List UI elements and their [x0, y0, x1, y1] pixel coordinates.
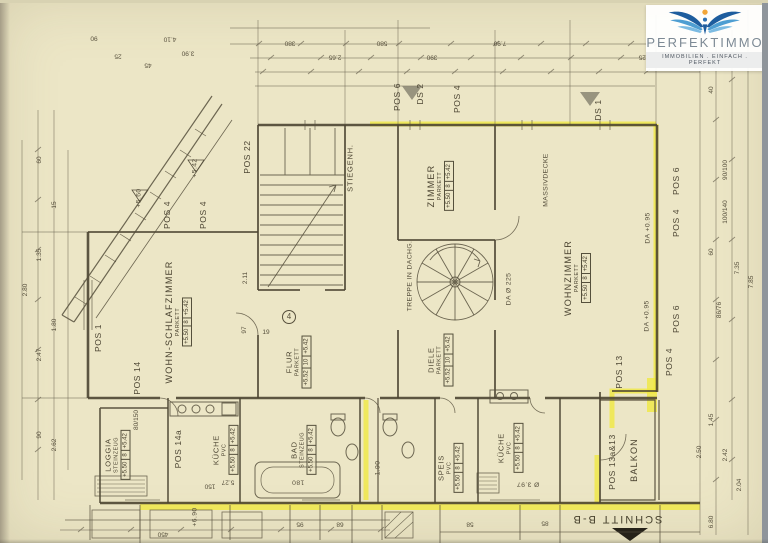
dim-label: 7.85 — [749, 276, 756, 289]
dim-label: 25 — [114, 52, 121, 59]
level-box: +5.5210+5.42 — [444, 333, 454, 386]
room-label-kueche-2: KÜCHE PVC +5.508+5.42 — [497, 423, 524, 473]
dim-label: 68 — [336, 520, 343, 527]
circled-number: 4 — [282, 310, 296, 324]
level-box: +5.508+5.42 — [454, 443, 464, 493]
dim-label: 2.65 — [329, 53, 342, 60]
room-label-wohnzimmer: WOHNZIMMER PARKETT +5.508+5.42 — [563, 240, 591, 316]
dim-label: 2.42 — [723, 449, 730, 462]
dim-label: 40 — [709, 86, 716, 93]
room-label-bad: BAD STEINZEUG +5.508+5.42 — [290, 425, 317, 475]
dim-label: 4.10 — [164, 35, 177, 42]
pos-label: DS 2 — [416, 83, 425, 104]
level-box: +5.5210+5.42 — [302, 335, 312, 388]
logo: PERFEKTIMMO IMMOBILIEN . EINFACH . PERFE… — [646, 5, 764, 71]
dim-label: 390 — [427, 53, 438, 60]
note-label: 180 — [292, 478, 305, 485]
note-label: +5.60 — [137, 188, 144, 207]
dim-label: 450 — [158, 530, 169, 537]
level-box: +5.508+5.42 — [229, 425, 239, 475]
dim-label: 58 — [466, 520, 473, 527]
level-box: +5.508+5.42 — [307, 425, 317, 475]
note-label: 1.90 — [376, 461, 383, 476]
dim-label: 2.62 — [52, 439, 59, 452]
dim-label: 80/150 — [134, 410, 141, 430]
kitchen-counter — [170, 402, 238, 416]
pos-label: POS 6 — [672, 167, 681, 195]
pos-label: POS 13a&13 — [608, 434, 617, 490]
dim-label: 6.80 — [709, 516, 716, 529]
note-label: DA +0.95 — [645, 300, 652, 331]
note-label: +5.42 — [193, 158, 200, 177]
level-box: +5.508+5.42 — [121, 430, 131, 480]
dim-label: 2.47 — [37, 349, 44, 362]
room-label-diele: DIELE PARKETT +5.5210+5.42 — [427, 333, 454, 386]
brand-wordmark: PERFEKTIMMO — [646, 35, 763, 50]
dim-label: 19 — [262, 330, 269, 337]
toilet — [331, 418, 345, 436]
room-label-kueche-1: KÜCHE PVC +5.508+5.42 — [212, 425, 239, 475]
note-label: MASSIVDECKE — [544, 153, 551, 207]
room-label-zimmer: ZIMMER PARKETT +5.508+5.42 — [426, 161, 454, 211]
scan-edge-bottom — [0, 539, 768, 543]
dim-label: 90 — [90, 34, 97, 41]
floorplan-sheet: WOHN-SCHLAFZIMMER PARKETT +5.508+5.42 ZI… — [0, 0, 768, 543]
dim-label: 1.35 — [37, 249, 44, 262]
dim-label: 45 — [144, 61, 151, 68]
spiral-stair — [417, 244, 493, 320]
dim-label: 1.80 — [52, 319, 59, 332]
dim-label: 90/100 — [723, 160, 730, 180]
pos-label: POS 4 — [665, 348, 674, 376]
dim-label: 2.50 — [697, 446, 704, 459]
dimension-chains — [22, 10, 748, 535]
dim-label: 60 — [709, 248, 716, 255]
pos-label: POS 6 — [672, 305, 681, 333]
pos-label: POS 14a — [174, 430, 183, 469]
note-label: TREPPE IN DACHG. — [408, 241, 415, 312]
pos-label: POS 4 — [163, 201, 172, 229]
level-box: +5.508+5.42 — [581, 253, 591, 303]
level-box: +5.508+5.42 — [182, 297, 192, 347]
staircase — [260, 128, 345, 287]
toilet — [383, 418, 397, 436]
dim-label: 60 — [37, 156, 44, 163]
door-arcs — [160, 216, 626, 460]
pos-label: POS 4 — [453, 85, 462, 113]
note-label: +6.90 — [193, 507, 200, 526]
scan-edge-right — [762, 0, 768, 543]
dim-label: 97 — [242, 326, 249, 333]
level-box: +5.508+5.42 — [514, 423, 524, 473]
eagle-sun-icon — [657, 7, 753, 37]
dim-label: 90 — [37, 431, 44, 438]
room-label-flur: FLUR PARKETT +5.5210+5.42 — [285, 335, 312, 388]
pos-label: POS 4 — [672, 209, 681, 237]
washbasin — [346, 444, 358, 460]
dim-label: 2.04 — [737, 479, 744, 492]
dim-label: 1.45 — [709, 414, 716, 427]
washbasin — [402, 442, 414, 458]
room-label-stiegenhaus: STIEGENH. — [346, 144, 355, 192]
note-label: Ø 3.97 — [517, 480, 540, 487]
dim-label: 150 — [205, 482, 216, 489]
grill — [477, 473, 499, 493]
dim-label: 15 — [52, 201, 59, 208]
room-label-wohn-schlafzimmer: WOHN-SCHLAFZIMMER PARKETT +5.508+5.42 — [164, 261, 192, 384]
dim-label: 3.90 — [182, 49, 195, 56]
dim-label: 2.80 — [23, 284, 30, 297]
dim-label: 100/140 — [723, 200, 730, 224]
scan-edge-left — [0, 0, 10, 543]
note-label: DA Ø 225 — [507, 273, 514, 306]
dim-label: 580 — [377, 39, 388, 46]
pos-label: POS 22 — [243, 140, 252, 173]
pos-label: POS 1 — [94, 324, 103, 352]
dim-label: 85 — [541, 519, 548, 526]
dim-label: 95 — [296, 520, 303, 527]
section-title: SCHNITT B-B — [572, 513, 663, 525]
brand-tagline: IMMOBILIEN . EINFACH . PERFEKT — [646, 52, 764, 68]
note-label: DA +0.95 — [646, 212, 653, 243]
dim-label: 86/76 — [717, 302, 724, 318]
room-label-speis: SPEIS PVC +5.508+5.42 — [437, 443, 464, 493]
pos-label: POS 14 — [133, 361, 142, 394]
pos-label: POS 13 — [615, 355, 624, 388]
dim-label: 380 — [285, 39, 296, 46]
level-box: +5.508+5.42 — [444, 161, 454, 211]
dim-label: 7.90 — [494, 39, 507, 46]
room-label-loggia: LOGGIA STEINZEUG +5.508+5.42 — [104, 430, 131, 480]
scan-edge-top — [0, 0, 768, 3]
pos-label: POS 4 — [199, 201, 208, 229]
dim-label: 7.35 — [735, 262, 742, 275]
dim-label: 2.11 — [243, 272, 250, 284]
room-label-balkon: BALKON — [629, 438, 639, 482]
pos-label: POS 6 — [393, 83, 402, 111]
pos-label: DS 1 — [594, 99, 603, 120]
dim-label: 5.27 — [222, 478, 235, 485]
